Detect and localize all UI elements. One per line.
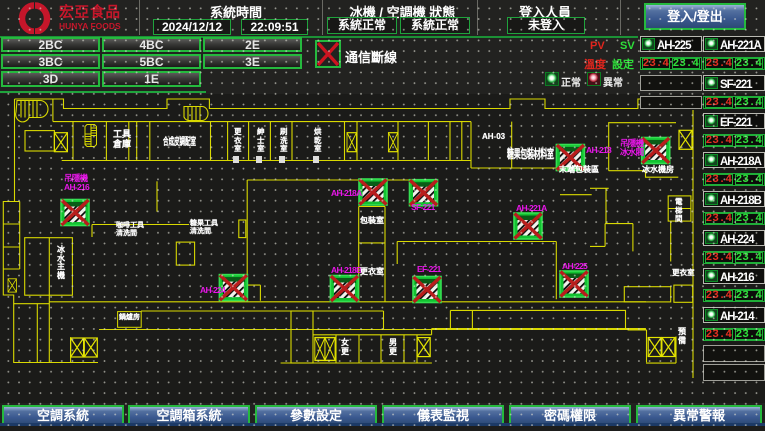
svg-text:HUNYA FOODS: HUNYA FOODS (59, 21, 121, 31)
svg-text:宏亞食品: 宏亞食品 (59, 3, 121, 21)
